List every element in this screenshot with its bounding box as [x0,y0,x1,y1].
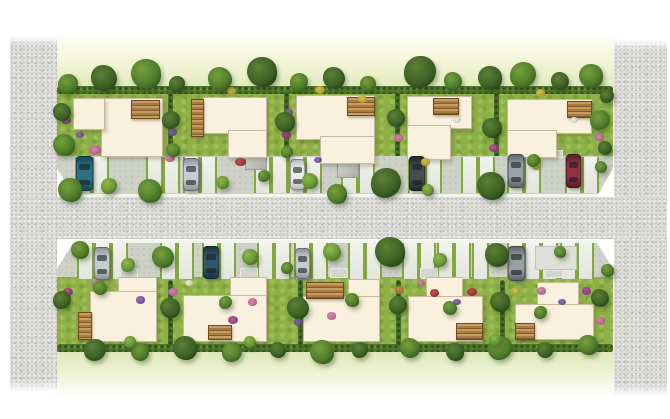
parking-pad [577,243,594,279]
tree [534,306,547,319]
tree [152,246,174,268]
tree [244,336,256,348]
house-top-4-deck [433,98,459,115]
flower-patch-yellow [358,95,367,102]
parking-pad [454,243,471,279]
car-darkblue [203,246,219,279]
car-windshield [79,164,90,170]
tree [302,173,318,189]
car-rear-window [186,180,196,185]
tree [173,336,197,360]
tree [270,342,286,358]
car-rear-window [569,177,578,182]
car-rear-window [511,270,522,275]
car-rear-window [511,177,521,182]
tree [537,342,553,358]
flower-patch-pink [89,145,101,155]
flower-patch-pink [595,133,604,140]
parking-pad [348,243,365,279]
flower-patch-yellow [227,87,236,94]
parking-pad [200,157,217,193]
flower-patch-pink [168,288,178,296]
car-windshield [206,254,216,260]
flower-patch-yellow [536,89,545,96]
tree [208,67,232,91]
tree [595,161,607,173]
tree [310,340,334,364]
tree [91,65,117,91]
tree [554,246,566,258]
car-windshield [298,256,307,262]
house-top-1-deck [131,100,160,119]
tree [53,134,75,156]
flower-patch-magenta [489,144,499,152]
car-windshield [97,255,107,261]
tree [579,64,603,88]
flower-patch-magenta [228,316,238,324]
tree [400,338,420,358]
flower-patch-magenta [282,131,291,138]
car-silver [94,247,110,280]
tree [490,292,510,312]
house-bottom-3-deck [306,282,344,299]
flower-patch-purple [168,128,177,135]
site-plan-illustration [0,0,670,419]
tree [242,249,258,265]
car-windshield [412,164,422,170]
tree [598,141,612,155]
flower-patch-red [430,289,439,296]
tree [287,297,309,319]
parking-pad [271,157,288,193]
flower-patch-yellow [421,158,430,165]
house-top-2 [228,130,267,158]
car-rear-window [97,269,107,274]
tree [327,184,347,204]
car-silver [183,158,199,191]
house-top-4 [407,125,451,160]
tree [578,335,598,355]
tree [478,66,502,90]
tree [275,112,295,132]
tree [446,343,464,361]
house-top-2 [203,97,267,134]
house-top-3 [320,136,375,164]
house-top-1 [73,98,105,130]
tree [53,103,71,121]
tree [93,281,107,295]
house-bottom-5-deck [515,323,535,340]
tree [360,76,376,92]
parking-pad [461,157,478,193]
car-rear-window [293,179,302,184]
car-rear-window [412,180,422,185]
tree [323,243,341,261]
car-windshield [186,166,196,172]
tree [345,293,359,307]
house-bottom-1 [90,291,157,342]
tree [551,72,569,90]
flower-patch-purple [136,296,145,303]
tree [485,243,509,267]
tree [387,109,405,127]
flower-patch-pink [394,134,403,141]
walkway [330,268,348,278]
flower-patch-yellow [315,86,325,94]
parking-pad [163,157,180,193]
flower-patch-pink [596,317,605,324]
house-bottom-4-deck [456,323,483,340]
tree [375,237,405,267]
flower-patch-red [467,288,477,296]
parking-pad [257,243,274,279]
tree [527,154,540,167]
house-bottom-3 [303,296,380,342]
flower-patch-red [235,158,246,167]
tree [482,118,502,138]
tree [216,176,229,189]
car-windshield [569,162,578,168]
house-top-5-deck [567,101,592,118]
tree [138,179,162,203]
walkway [545,270,563,278]
car-rear-window [206,268,216,273]
car-gray [508,154,524,188]
tree [219,296,232,309]
tree [591,289,609,307]
tree [422,184,434,196]
flower-patch-orange [395,286,404,293]
tree [160,298,180,318]
car-windshield [511,254,522,260]
flower-patch-pink [248,298,257,305]
car-silver [295,248,310,279]
tree [443,301,457,315]
car-windshield [293,167,302,173]
car-gray [508,246,525,281]
flower-patch-pink [327,312,336,319]
tree [247,57,277,87]
tree [601,264,614,277]
tree [323,67,345,89]
car-windshield [511,162,521,168]
parking-pad [219,243,236,279]
tree [166,143,180,157]
house-top-2-deck [191,99,204,137]
tree [489,334,501,346]
tree [131,59,161,89]
tree [58,178,82,202]
tree [477,172,505,200]
car-darkred [566,154,581,188]
parking-pad [177,243,194,279]
tree [444,72,462,90]
flower-patch-magenta [582,287,591,294]
house-bottom-1-deck [78,312,92,340]
car-rear-window [298,268,307,273]
flower-patch-pink [537,287,546,294]
flower-patch-purple [294,318,303,325]
house-bottom-2-deck [208,325,232,340]
tree [71,241,89,259]
